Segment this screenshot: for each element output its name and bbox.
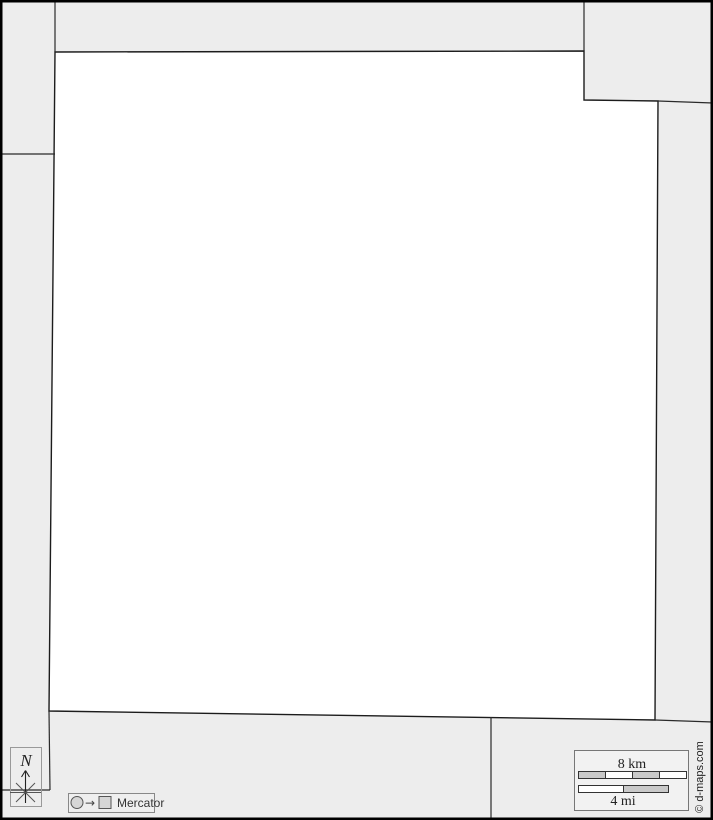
scale-mi-bar bbox=[579, 786, 669, 793]
projection-circle-icon bbox=[71, 797, 83, 809]
map-stage: N → Mercator 8 km bbox=[0, 0, 713, 820]
scale-mi-label: 4 mi bbox=[610, 794, 635, 809]
scale-km-label: 8 km bbox=[618, 757, 647, 772]
map-canvas: N → Mercator 8 km bbox=[0, 0, 713, 820]
projection-square-icon bbox=[99, 797, 111, 809]
compass-north-label: N bbox=[19, 751, 33, 770]
scale-bar-box: 8 km 4 mi bbox=[575, 751, 689, 811]
projection-legend: → Mercator bbox=[69, 794, 165, 813]
projection-label: Mercator bbox=[117, 796, 164, 810]
scale-km-bar bbox=[579, 772, 687, 779]
main-map-region bbox=[49, 51, 658, 720]
credit-label: © d-maps.com bbox=[694, 741, 706, 813]
projection-arrow-icon: → bbox=[85, 796, 95, 810]
